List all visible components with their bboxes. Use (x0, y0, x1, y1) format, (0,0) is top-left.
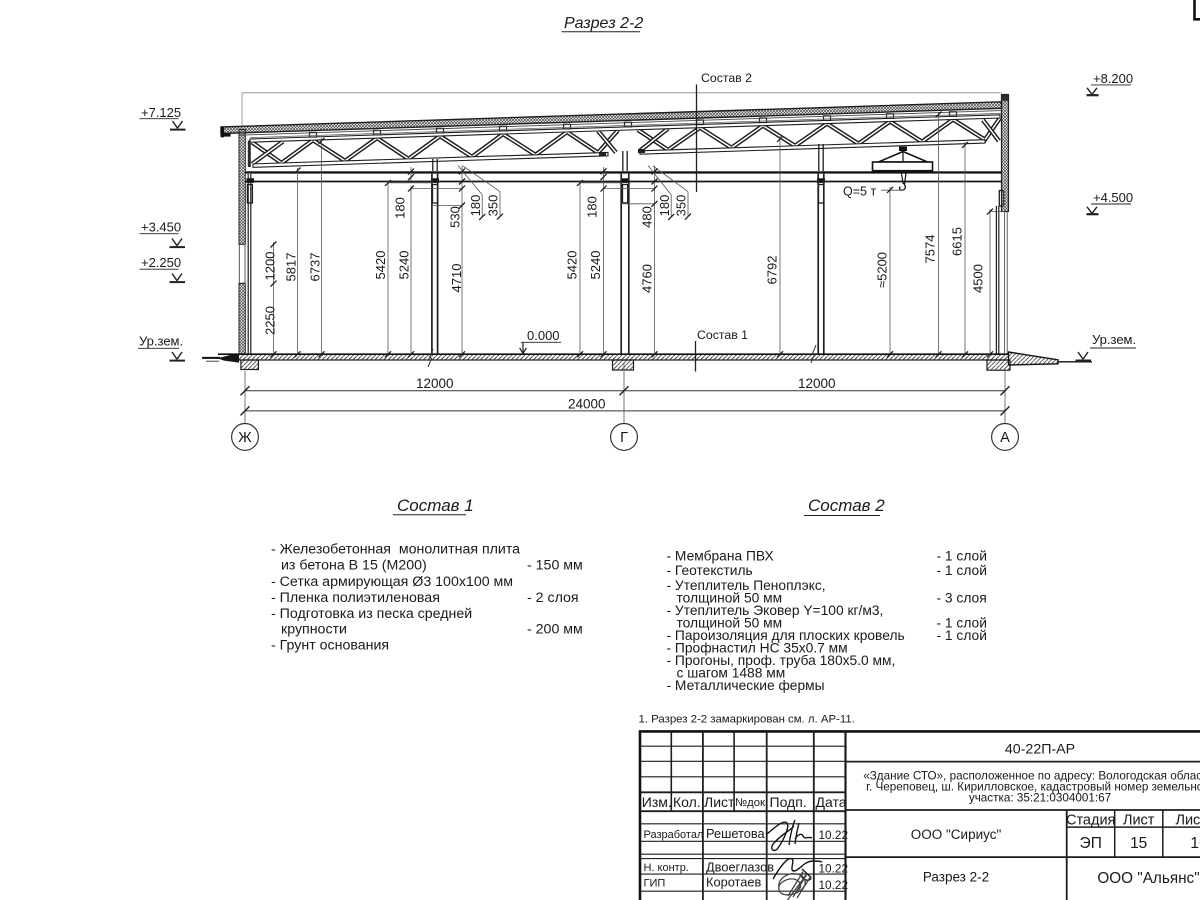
svg-text:Н. контр.: Н. контр. (644, 862, 689, 874)
svg-text:350: 350 (486, 195, 501, 217)
svg-text:6792: 6792 (765, 256, 780, 285)
svg-text:2250: 2250 (263, 306, 278, 335)
svg-text:480: 480 (640, 206, 655, 228)
svg-text:12000: 12000 (798, 376, 836, 391)
svg-text:- Пленка полиэтиленовая: - Пленка полиэтиленовая (271, 590, 440, 606)
svg-text:16: 16 (1190, 835, 1200, 852)
svg-text:40-22П-АР: 40-22П-АР (1005, 742, 1075, 758)
svg-text:из бетона В 15 (М200): из бетона В 15 (М200) (281, 558, 427, 574)
svg-text:крупности: крупности (281, 622, 347, 638)
svg-text:- Подготовка из песка средней: - Подготовка из песка средней (271, 606, 472, 622)
svg-text:А: А (1000, 430, 1010, 446)
svg-text:Лист: Лист (704, 794, 735, 810)
svg-text:180: 180 (393, 197, 408, 219)
svg-text:6737: 6737 (308, 253, 323, 282)
svg-text:10.22: 10.22 (819, 862, 849, 876)
svg-text:12000: 12000 (416, 376, 454, 391)
svg-text:Разработал: Разработал (644, 829, 704, 841)
svg-text:№док.: №док. (735, 797, 768, 809)
svg-text:+7.125: +7.125 (141, 105, 181, 120)
svg-text:6615: 6615 (950, 227, 965, 256)
svg-text:Подп.: Подп. (770, 794, 807, 810)
svg-text:Ур.зем.: Ур.зем. (139, 334, 183, 349)
svg-text:- 1 слой: - 1 слой (937, 549, 987, 564)
svg-text:180: 180 (468, 195, 483, 217)
svg-text:+8.200: +8.200 (1093, 71, 1133, 86)
svg-text:350: 350 (674, 195, 689, 217)
svg-text:180: 180 (657, 195, 672, 217)
svg-text:- Металлические фермы: - Металлические фермы (667, 678, 825, 693)
svg-text:Дата: Дата (816, 794, 847, 810)
svg-text:180: 180 (585, 196, 600, 218)
svg-text:ЭП: ЭП (1080, 835, 1102, 852)
svg-text:+2.250: +2.250 (141, 255, 181, 270)
svg-text:Ж: Ж (238, 430, 252, 446)
svg-text:- Мембрана ПВХ: - Мембрана ПВХ (667, 549, 774, 564)
svg-text:4710: 4710 (449, 264, 464, 293)
svg-text:5420: 5420 (565, 251, 580, 280)
svg-text:- 200 мм: - 200 мм (527, 622, 583, 638)
svg-text:Разрез 2-2: Разрез 2-2 (564, 15, 643, 32)
svg-text:4500: 4500 (971, 264, 986, 293)
svg-text:Состав 1: Состав 1 (397, 496, 474, 515)
svg-text:Стадия: Стадия (1066, 813, 1115, 829)
svg-text:Разрез 2-2: Разрез 2-2 (923, 870, 989, 885)
svg-text:Состав 2: Состав 2 (808, 496, 885, 515)
svg-text:- Сетка армирующая Ø3 100х100: - Сетка армирующая Ø3 100х100 мм (271, 574, 513, 590)
svg-text:5420: 5420 (373, 251, 388, 280)
svg-text:ООО "Альянс": ООО "Альянс" (1097, 870, 1199, 887)
svg-text:- Железобетонная монолитная п: - Железобетонная монолитная плита (271, 542, 520, 558)
svg-text:+3.450: +3.450 (141, 220, 181, 235)
svg-text:Q=5 т: Q=5 т (843, 185, 876, 199)
svg-text:5817: 5817 (284, 253, 299, 282)
svg-text:≈5200: ≈5200 (875, 252, 890, 288)
svg-text:10.22: 10.22 (819, 878, 849, 892)
svg-text:5240: 5240 (588, 251, 603, 280)
svg-text:Лист: Лист (1123, 813, 1155, 829)
svg-text:- Геотекстиль: - Геотекстиль (667, 563, 753, 578)
svg-text:Кол.: Кол. (673, 794, 701, 810)
svg-text:530: 530 (448, 206, 463, 228)
svg-text:4760: 4760 (640, 264, 655, 293)
svg-text:5240: 5240 (397, 251, 412, 280)
svg-text:10.22: 10.22 (819, 828, 849, 842)
svg-text:7574: 7574 (923, 235, 938, 264)
svg-text:участка: 35:21:0304001:67: участка: 35:21:0304001:67 (969, 792, 1111, 805)
svg-text:1200: 1200 (263, 252, 278, 281)
svg-text:- 3 слоя: - 3 слоя (937, 590, 987, 605)
svg-text:Состав 2: Состав 2 (701, 71, 752, 85)
svg-text:- Грунт основания: - Грунт основания (271, 638, 389, 654)
svg-text:- 1 слой: - 1 слой (937, 563, 987, 578)
svg-text:15: 15 (1130, 835, 1147, 852)
svg-text:- 150 мм: - 150 мм (527, 558, 583, 574)
svg-text:Листов: Листов (1175, 813, 1200, 829)
svg-text:Ур.зем.: Ур.зем. (1092, 332, 1136, 347)
svg-text:- 1 слой: - 1 слой (937, 628, 987, 643)
svg-text:ООО "Сириус": ООО "Сириус" (911, 827, 1002, 842)
svg-text:- 2 слоя: - 2 слоя (527, 590, 579, 606)
svg-text:Двоеглазов: Двоеглазов (706, 860, 774, 875)
svg-text:24000: 24000 (568, 397, 606, 412)
svg-text:Решетова: Решетова (706, 826, 766, 841)
svg-text:ГИП: ГИП (644, 878, 666, 890)
svg-text:Коротаев: Коротаев (706, 875, 761, 890)
svg-text:+4.500: +4.500 (1093, 190, 1133, 205)
svg-text:0.000: 0.000 (527, 328, 560, 343)
svg-text:Состав 1: Состав 1 (697, 328, 748, 342)
svg-text:Изм.: Изм. (642, 794, 672, 810)
svg-text:1. Разрез 2-2 замаркирован см.: 1. Разрез 2-2 замаркирован см. л. АР-11. (639, 714, 855, 726)
svg-text:Г: Г (620, 430, 628, 446)
